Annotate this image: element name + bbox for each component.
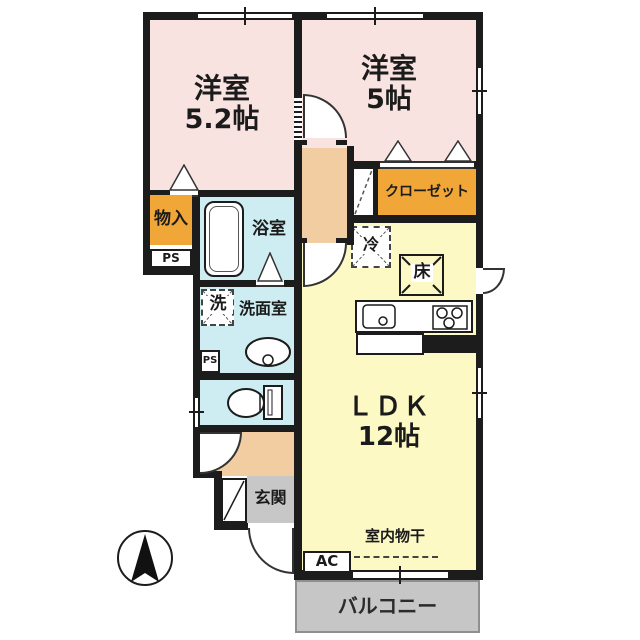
washbasin	[244, 336, 292, 370]
door-ldk-service	[483, 268, 505, 294]
window-mullion	[374, 7, 376, 25]
wall-top	[143, 12, 483, 20]
wall-kitchen-stub	[424, 335, 476, 353]
ac-label: AC	[316, 554, 339, 570]
corridor-doorway-jamb	[294, 140, 307, 145]
folding-door-closet	[443, 140, 473, 162]
closet-front-line	[380, 161, 474, 169]
bedroom2-size: 5帖	[302, 86, 476, 114]
wall-washroom-toilet	[197, 373, 294, 380]
wall-divider-sliding-section	[294, 96, 302, 142]
wall-below-shoebox	[214, 523, 248, 530]
folding-door-bath	[256, 252, 284, 282]
ac-box: AC	[303, 551, 351, 573]
bathtub	[204, 201, 244, 277]
wall-ps-bottom	[143, 268, 200, 275]
ldk-size: 12帖	[302, 424, 476, 451]
ps-upper-label: PS	[162, 252, 179, 265]
indoor-drying-label: 室内物干	[340, 529, 450, 545]
corridor-doorway-jamb	[336, 238, 347, 243]
compass-glyph	[115, 528, 175, 590]
kitchen-counter	[355, 300, 473, 333]
door-entrance	[248, 528, 294, 574]
washroom-label: 洗面室	[230, 301, 296, 318]
ps-upper-box: PS	[150, 249, 192, 268]
ldk-name: ＬＤＫ	[302, 394, 476, 421]
storage-label: 物入	[154, 211, 188, 229]
entrance-label: 玄関	[247, 490, 294, 507]
toilet-glyph	[224, 383, 286, 423]
kitchen-glyphs	[357, 302, 471, 331]
closet-label: クローゼット	[385, 185, 469, 200]
storage-diagonal-mark	[354, 169, 373, 215]
fridge-label: 冷	[361, 237, 381, 254]
compass-north-icon	[115, 528, 175, 590]
closet-side-storage	[354, 169, 373, 215]
wall-bedroom-divider	[294, 12, 302, 96]
washbasin-glyph	[244, 336, 292, 370]
wall-left	[143, 12, 150, 275]
bedroom1-size: 5.2帖	[150, 106, 294, 134]
shoe-cabinet	[221, 478, 247, 523]
wall-monoire-right	[192, 190, 200, 275]
storage-monoire: 物入	[150, 195, 192, 245]
bedroom2-name: 洋室	[302, 54, 476, 83]
window-mullion	[399, 566, 401, 584]
window-mullion	[244, 7, 246, 25]
bath-label: 浴室	[242, 221, 296, 239]
wall-toilet-hall	[197, 425, 294, 432]
washer-label: 洗	[203, 296, 233, 314]
window-mullion	[189, 411, 204, 413]
corridor-doorway-jamb	[336, 140, 347, 145]
wall-ldk-west	[294, 142, 302, 580]
ps-lower-label: PS	[203, 356, 218, 367]
kitchen-cabinet-front	[356, 333, 424, 355]
toilet	[224, 383, 286, 423]
ps-lower-box: PS	[200, 350, 220, 373]
doorway-gap-right-wall	[476, 268, 483, 294]
bedroom1-name: 洋室	[150, 74, 294, 103]
bathtub-inner-line	[209, 206, 239, 272]
wall-shoebox-left	[214, 476, 221, 530]
corridor-floor	[302, 148, 347, 243]
balcony-label: バルコニー	[295, 596, 480, 617]
folding-door-monoire	[168, 164, 200, 191]
floor-storage-label: 床	[411, 264, 433, 282]
floor-plan: 物入 PS クローゼット	[0, 0, 640, 640]
folding-door-closet	[383, 140, 413, 162]
shoe-cabinet-diagonal	[223, 480, 245, 521]
wall-closet-bottom	[347, 215, 476, 223]
closet-box: クローゼット	[378, 169, 476, 215]
indoor-drying-line	[354, 556, 438, 558]
